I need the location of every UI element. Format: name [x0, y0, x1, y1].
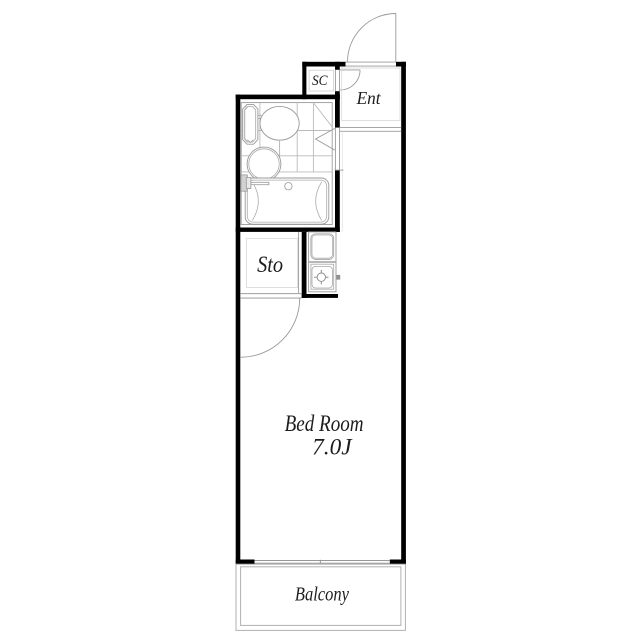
svg-text:Balcony: Balcony	[295, 584, 349, 606]
svg-text:7.0J: 7.0J	[312, 434, 353, 460]
svg-text:Sto: Sto	[257, 252, 283, 277]
svg-text:SC: SC	[312, 73, 328, 89]
svg-text:Bed Room: Bed Room	[285, 411, 364, 437]
svg-text:Ent: Ent	[356, 88, 382, 108]
